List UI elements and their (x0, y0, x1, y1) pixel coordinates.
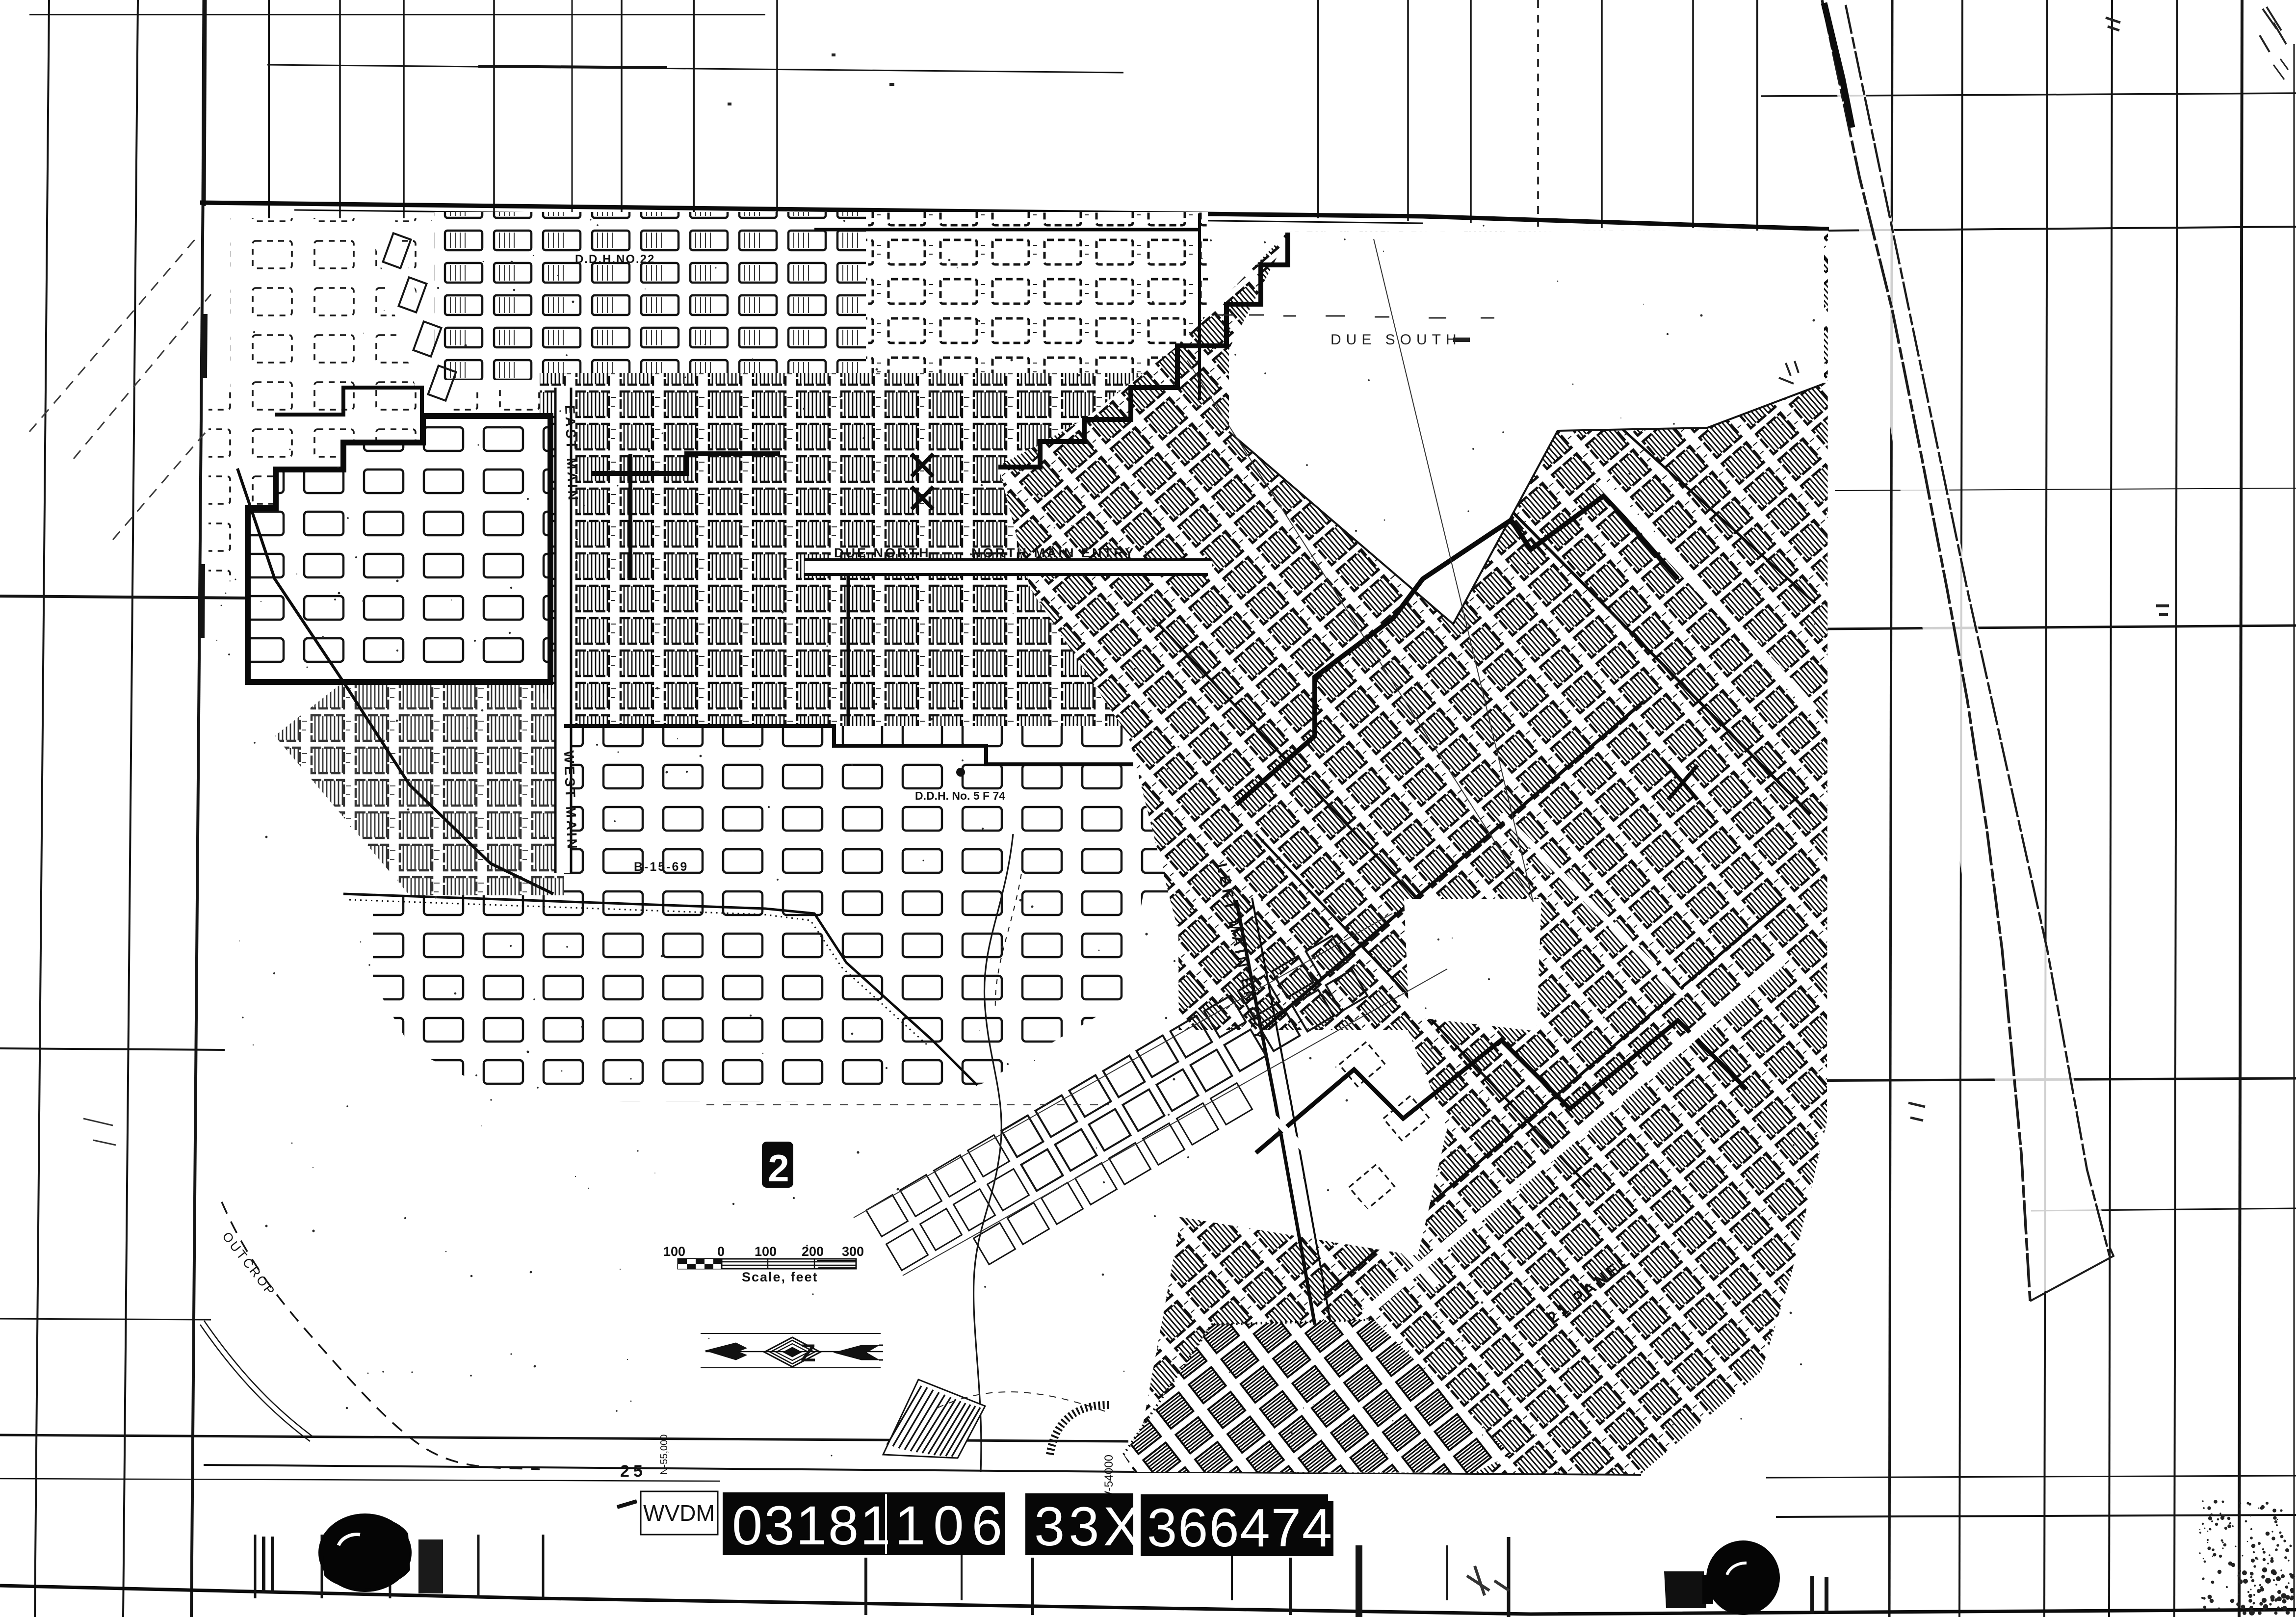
svg-text:200: 200 (802, 1244, 824, 1259)
svg-text:DUE NORTH: DUE NORTH (834, 546, 931, 560)
svg-text:106: 106 (895, 1495, 1010, 1556)
svg-text:Z: Z (801, 1339, 816, 1367)
svg-text:DUE SOUTH: DUE SOUTH (1331, 332, 1461, 348)
svg-text:33X: 33X (1034, 1496, 1144, 1557)
svg-text:2: 2 (768, 1147, 789, 1190)
svg-text:B-15-69: B-15-69 (634, 860, 688, 874)
svg-text:300: 300 (842, 1244, 864, 1259)
svg-text:NORTH MAIN ENTRY: NORTH MAIN ENTRY (971, 546, 1136, 560)
svg-text:25: 25 (620, 1462, 647, 1481)
svg-text:D.D.H.NO.22: D.D.H.NO.22 (575, 253, 655, 266)
svg-text:03181: 03181 (732, 1495, 892, 1556)
svg-text:0: 0 (717, 1244, 725, 1259)
svg-text:Scale, feet: Scale, feet (742, 1270, 818, 1284)
svg-text:100: 100 (663, 1244, 685, 1259)
svg-text:N-55,000: N-55,000 (659, 1434, 670, 1475)
svg-text:D.D.H. No. 5 F 74: D.D.H. No. 5 F 74 (915, 789, 1005, 802)
svg-text:366474: 366474 (1147, 1498, 1333, 1558)
svg-text:100: 100 (755, 1244, 777, 1259)
svg-text:WVDM: WVDM (643, 1500, 715, 1526)
